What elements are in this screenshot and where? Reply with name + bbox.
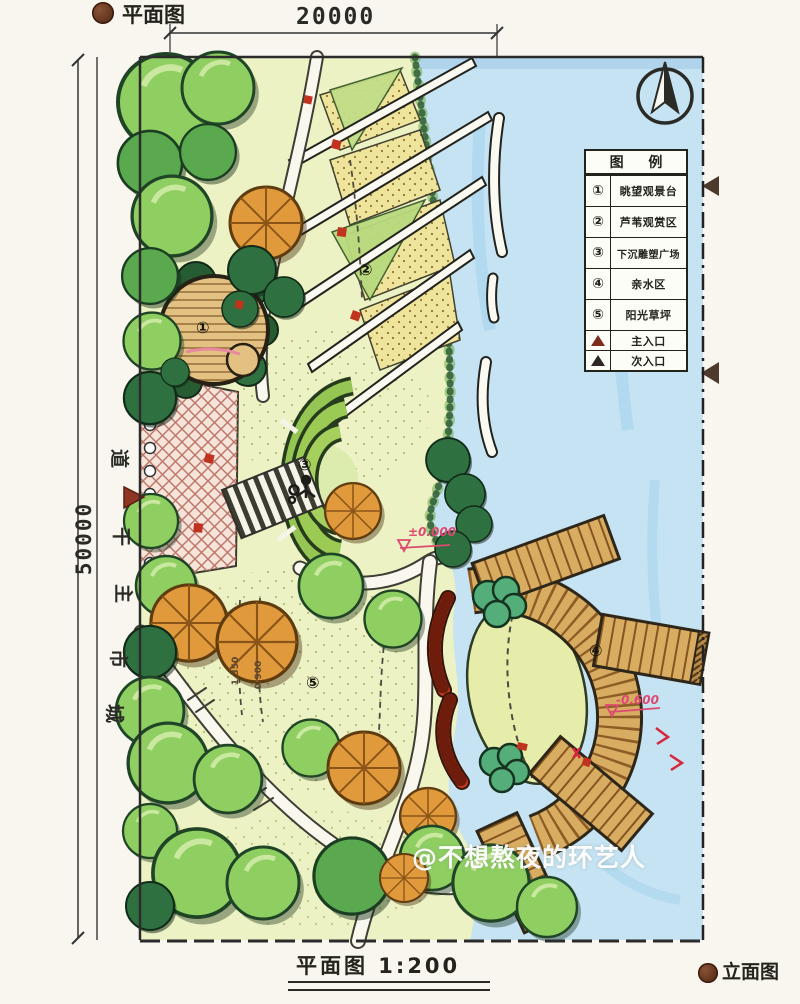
legend-label-secondary-entrance: 次入口 (611, 351, 686, 370)
contour-level-b: 0.900 (254, 661, 264, 689)
road-name-char-zhu: 主 (111, 584, 138, 603)
road-name-char-dao: 道 (107, 449, 134, 468)
legend-symbol-3: ③ (586, 238, 611, 268)
legend-row-5: ⑤ 阳光草坪 (586, 299, 686, 330)
legend-symbol-1: ① (586, 176, 611, 206)
scale-label: 平面图 1:200 (296, 956, 460, 977)
legend-row-3: ③ 下沉雕塑广场 (586, 237, 686, 268)
plan-title: 平面图 (122, 5, 185, 26)
marker-sunken-plaza: ③ (298, 455, 312, 474)
elevation-zero-label: ±0.000 (408, 526, 456, 538)
legend-symbol-5: ⑤ (586, 300, 611, 330)
main-entrance-icon (586, 331, 611, 350)
road-name-char-shi: 市 (106, 649, 133, 668)
road-name-char-cheng: 城 (102, 704, 129, 723)
brown-dot-icon-2 (698, 963, 718, 983)
legend-row-1: ① 眺望观景台 (586, 175, 686, 206)
marker-viewing-platform: ① (196, 318, 210, 337)
dimension-width-label: 20000 (296, 6, 375, 29)
secondary-entrance-triangle-1 (702, 176, 719, 196)
legend-symbol-4: ④ (586, 269, 611, 299)
marker-waterfront: ④ (589, 641, 603, 660)
brown-dot-icon (92, 2, 114, 24)
legend-row-secondary-entrance: 次入口 (586, 350, 686, 370)
elevation-view-label: 立面图 (722, 963, 779, 982)
secondary-entrance-icon (586, 351, 611, 370)
contour-level-a: 1.350 (231, 657, 241, 685)
marker-reed-area: ② (359, 260, 373, 279)
legend-label-5: 阳光草坪 (611, 300, 686, 330)
marker-lawn: ⑤ (306, 673, 320, 692)
watermark-text: @不想熬夜的环艺人 (412, 838, 646, 874)
scanned-landscape-plan: 平面图 20000 50000 道 干 主 市 城 ① ② ③ ④ ⑤ ±0.0… (0, 0, 800, 1004)
elevation-negative-label: -0.600 (616, 694, 659, 706)
legend-symbol-2: ② (586, 207, 611, 237)
legend-row-4: ④ 亲水区 (586, 268, 686, 299)
road-name-char-gan: 干 (109, 527, 136, 546)
legend-label-1: 眺望观景台 (611, 176, 686, 206)
legend-row-2: ② 芦苇观赏区 (586, 206, 686, 237)
legend-label-4: 亲水区 (611, 269, 686, 299)
legend-row-main-entrance: 主入口 (586, 330, 686, 350)
legend-box: 图 例 ① 眺望观景台 ② 芦苇观赏区 ③ 下沉雕塑广场 ④ 亲水区 ⑤ 阳光草… (584, 149, 688, 372)
legend-title: 图 例 (586, 151, 686, 175)
dimension-height-label: 50000 (74, 502, 95, 575)
scale-underline (288, 981, 490, 991)
legend-label-3: 下沉雕塑广场 (611, 238, 686, 268)
legend-label-2: 芦苇观赏区 (611, 207, 686, 237)
legend-label-main-entrance: 主入口 (611, 331, 686, 350)
